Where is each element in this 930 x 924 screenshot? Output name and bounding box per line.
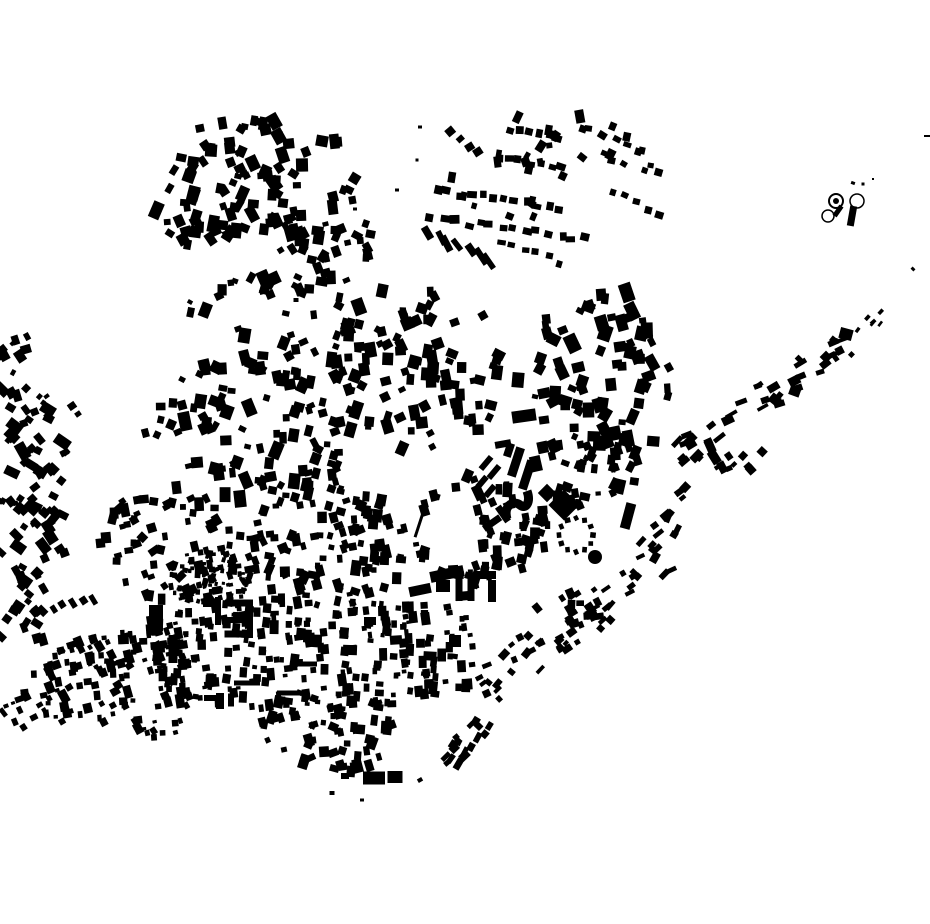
building-footprints-clusters xyxy=(0,109,768,777)
map-viewport xyxy=(0,0,930,924)
circular-building-crescent xyxy=(556,515,596,555)
figure-ground-map xyxy=(0,0,930,924)
